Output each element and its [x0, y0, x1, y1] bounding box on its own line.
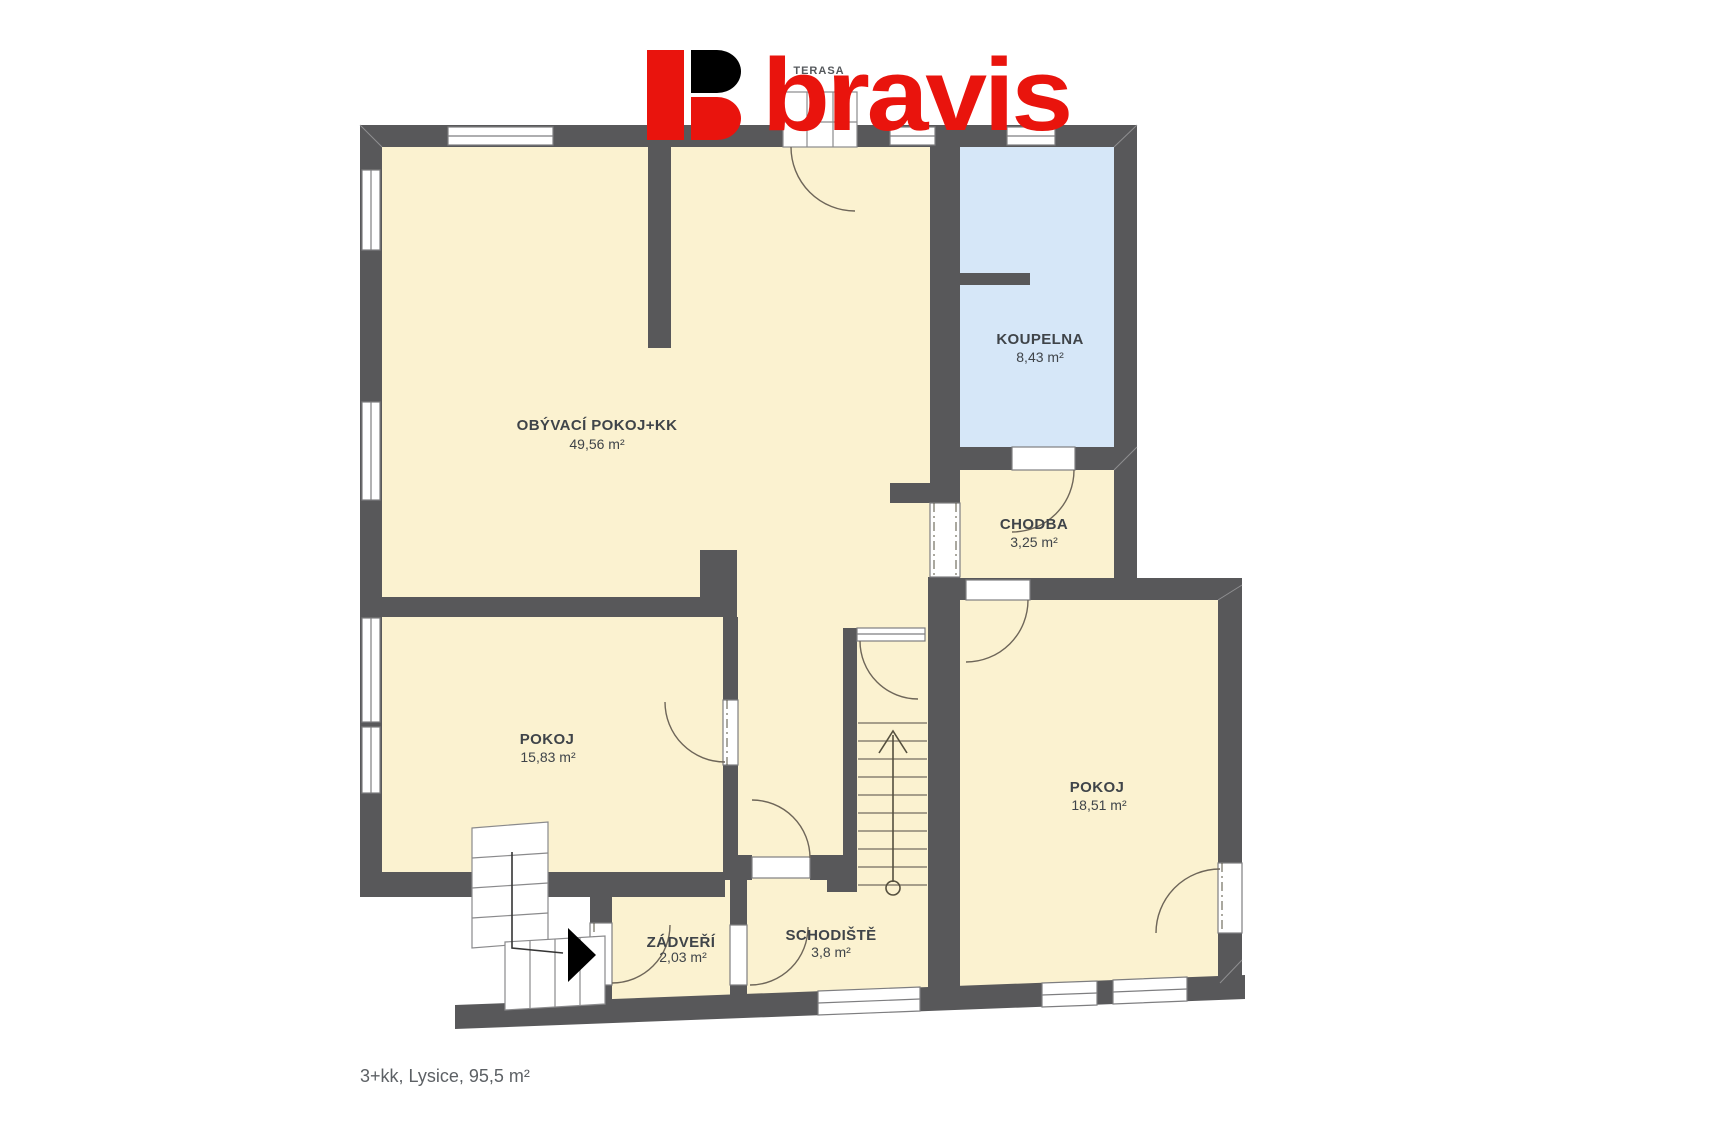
wall-zadveri-right-a [730, 880, 747, 925]
wall-zadveri-left-a [590, 897, 612, 923]
wall-zadveri-right-b [730, 985, 747, 1006]
floorplan-page: OBÝVACÍ POKOJ+KK 49,56 m² KOUPELNA 8,43 … [0, 0, 1719, 1137]
room-label-obyvaci-pokoj: OBÝVACÍ POKOJ+KK [517, 416, 678, 434]
wall-hall-bottom-a [723, 855, 752, 880]
bravis-logo: bravis [647, 37, 1070, 152]
room-area-chodba: 3,25 m² [1010, 534, 1058, 550]
floorplan-svg: OBÝVACÍ POKOJ+KK 49,56 m² KOUPELNA 8,43 … [0, 0, 1719, 1137]
logo-monogram-top-bowl [691, 50, 741, 93]
room-label-pokoj-18: POKOJ [1070, 779, 1125, 796]
wall-stair-left [843, 628, 857, 890]
wall-bath-bottom-b [1075, 447, 1137, 470]
room-area-schodiste: 3,8 m² [811, 944, 851, 960]
room-koupelna-fill [958, 147, 1116, 447]
room-area-koupelna: 8,43 m² [1016, 349, 1064, 365]
room-area-zadveri: 2,03 m² [659, 949, 707, 965]
room-area-obyvaci-pokoj: 49,56 m² [569, 436, 625, 452]
door-zadveri-schodiste [730, 925, 747, 985]
plan-caption: 3+kk, Lysice, 95,5 m² [360, 1066, 530, 1086]
door-pokoj18 [966, 580, 1030, 600]
wall-pillar [700, 550, 737, 617]
room-label-pokoj-15: POKOJ [520, 731, 575, 748]
logo-monogram [647, 50, 741, 140]
door-hall-schodiste [752, 857, 810, 878]
wall-bath-bottom-a [930, 447, 1012, 470]
wall-stub-kitchen [890, 483, 930, 503]
room-area-pokoj-18: 18,51 m² [1071, 797, 1127, 813]
wall-right-bath [1114, 125, 1137, 597]
logo-wordmark: bravis [762, 37, 1070, 152]
room-label-chodba: CHODBA [1000, 516, 1068, 533]
door-pokoj15 [723, 700, 738, 765]
room-area-pokoj-15: 15,83 m² [520, 749, 576, 765]
room-label-koupelna: KOUPELNA [996, 331, 1083, 348]
wall-entry-partition [648, 147, 671, 348]
wall-stair-foot [827, 862, 857, 892]
door-koupelna [1012, 447, 1075, 470]
logo-monogram-bottom-bowl [691, 97, 741, 140]
wall-shower-stub [960, 273, 1030, 285]
room-label-schodiste: SCHODIŠTĚ [785, 926, 876, 944]
wall-hall-upper [723, 617, 738, 700]
wall-living-pokoj15 [382, 597, 713, 617]
wall-stair-right [928, 577, 960, 997]
